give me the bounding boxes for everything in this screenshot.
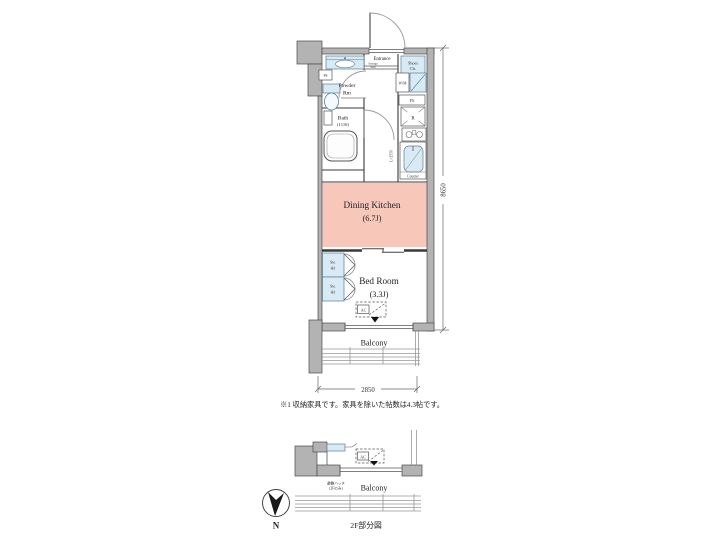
bath-shelf	[324, 111, 332, 125]
storage-lower-box	[323, 277, 345, 301]
entrance-door-arc	[370, 13, 405, 48]
lower-partial-plan	[295, 430, 422, 511]
balcony-railing-main	[322, 331, 420, 366]
bath-door-arc	[364, 110, 394, 140]
dimension-width-label: 2850	[361, 387, 375, 394]
storage-lower-label-2: ※1	[330, 291, 335, 295]
storage-upper-label-1: Sto.	[330, 261, 336, 265]
window-marker-triangle	[371, 317, 379, 323]
shoes-closet-label-2: Cls.	[410, 66, 417, 71]
vanity-faucet	[344, 57, 346, 59]
footnote: ※1 収納家具です。家具を除いた帖数は4.3帖です。	[280, 400, 444, 409]
north-compass-icon	[263, 490, 290, 517]
entrance-sub-label-2: Seat	[370, 65, 375, 69]
bed-room-size-label: (3.3J)	[370, 290, 389, 299]
bedroom-window	[345, 317, 413, 331]
balcony-label: Balcony	[361, 339, 388, 348]
powder-room-label-1: Powder	[339, 83, 356, 89]
wall-left	[318, 96, 322, 323]
floor-plan-drawing: Entrance Storage Seat Shoes Cls. W/M PS …	[0, 0, 720, 540]
wall-top-left-segment	[322, 48, 369, 54]
powder-room-label-2: Rm	[343, 91, 352, 97]
dining-kitchen-label: Dining Kitchen	[344, 200, 401, 210]
lower-ac-label: AC	[360, 455, 366, 460]
pipe-space-left-label: PS	[324, 74, 328, 78]
dining-kitchen-size-label: (6.7J)	[363, 214, 382, 223]
counter-label: Counter	[407, 175, 419, 179]
dimension-height-label: 8650	[440, 183, 447, 197]
wall-balcony-left-block	[309, 320, 322, 373]
wall-bottom-left-segment	[322, 323, 345, 331]
ac-diagonal	[369, 304, 385, 316]
bed-room-label: Bed Room	[359, 276, 399, 286]
counter-length-label: L=2550	[390, 150, 394, 162]
toilet-bowl-icon	[325, 93, 339, 110]
sliding-door-dk-bedroom	[362, 249, 404, 253]
wall-bottom-right-segment	[413, 323, 434, 331]
evacuation-hatch-icon	[327, 444, 345, 451]
hatch-leader-line	[345, 444, 357, 448]
lower-balcony-label: Balcony	[361, 484, 388, 493]
pipe-space-right-label: PS	[410, 98, 414, 103]
lower-ac-diagonal	[368, 451, 383, 462]
bath-label: Bath	[338, 116, 349, 122]
lower-wall-step	[313, 442, 327, 452]
storage-upper-label-2: ※1	[330, 267, 335, 271]
bath-size-label: (1116)	[337, 122, 349, 127]
lower-wall-bar-right	[402, 465, 422, 476]
lower-plan-caption: 2F部分図	[350, 520, 382, 530]
washing-machine-label: W/M	[398, 82, 407, 86]
storage-lower-label-1: Sto.	[330, 285, 336, 289]
wall-top-left-block	[297, 41, 322, 64]
lower-wall-bar-left	[317, 465, 340, 476]
bath-fixtures	[324, 110, 394, 161]
toilet-tank-icon	[323, 84, 340, 93]
bedroom-closets	[323, 253, 356, 301]
floor-plan-page: Entrance Storage Seat Shoes Cls. W/M PS …	[0, 0, 720, 540]
evacuation-hatch-label-2: (2Fのみ)	[329, 486, 343, 491]
entrance-door	[369, 13, 405, 53]
vanity-basin	[336, 60, 355, 68]
wall-right	[427, 48, 434, 331]
shoes-closet-label-1: Shoes	[408, 61, 418, 66]
storage-upper-box	[323, 253, 345, 277]
compass-north-label: N	[273, 521, 280, 531]
evacuation-hatch-label-1: 避難ハッチ	[327, 481, 345, 486]
ac-label: AC	[361, 308, 367, 313]
